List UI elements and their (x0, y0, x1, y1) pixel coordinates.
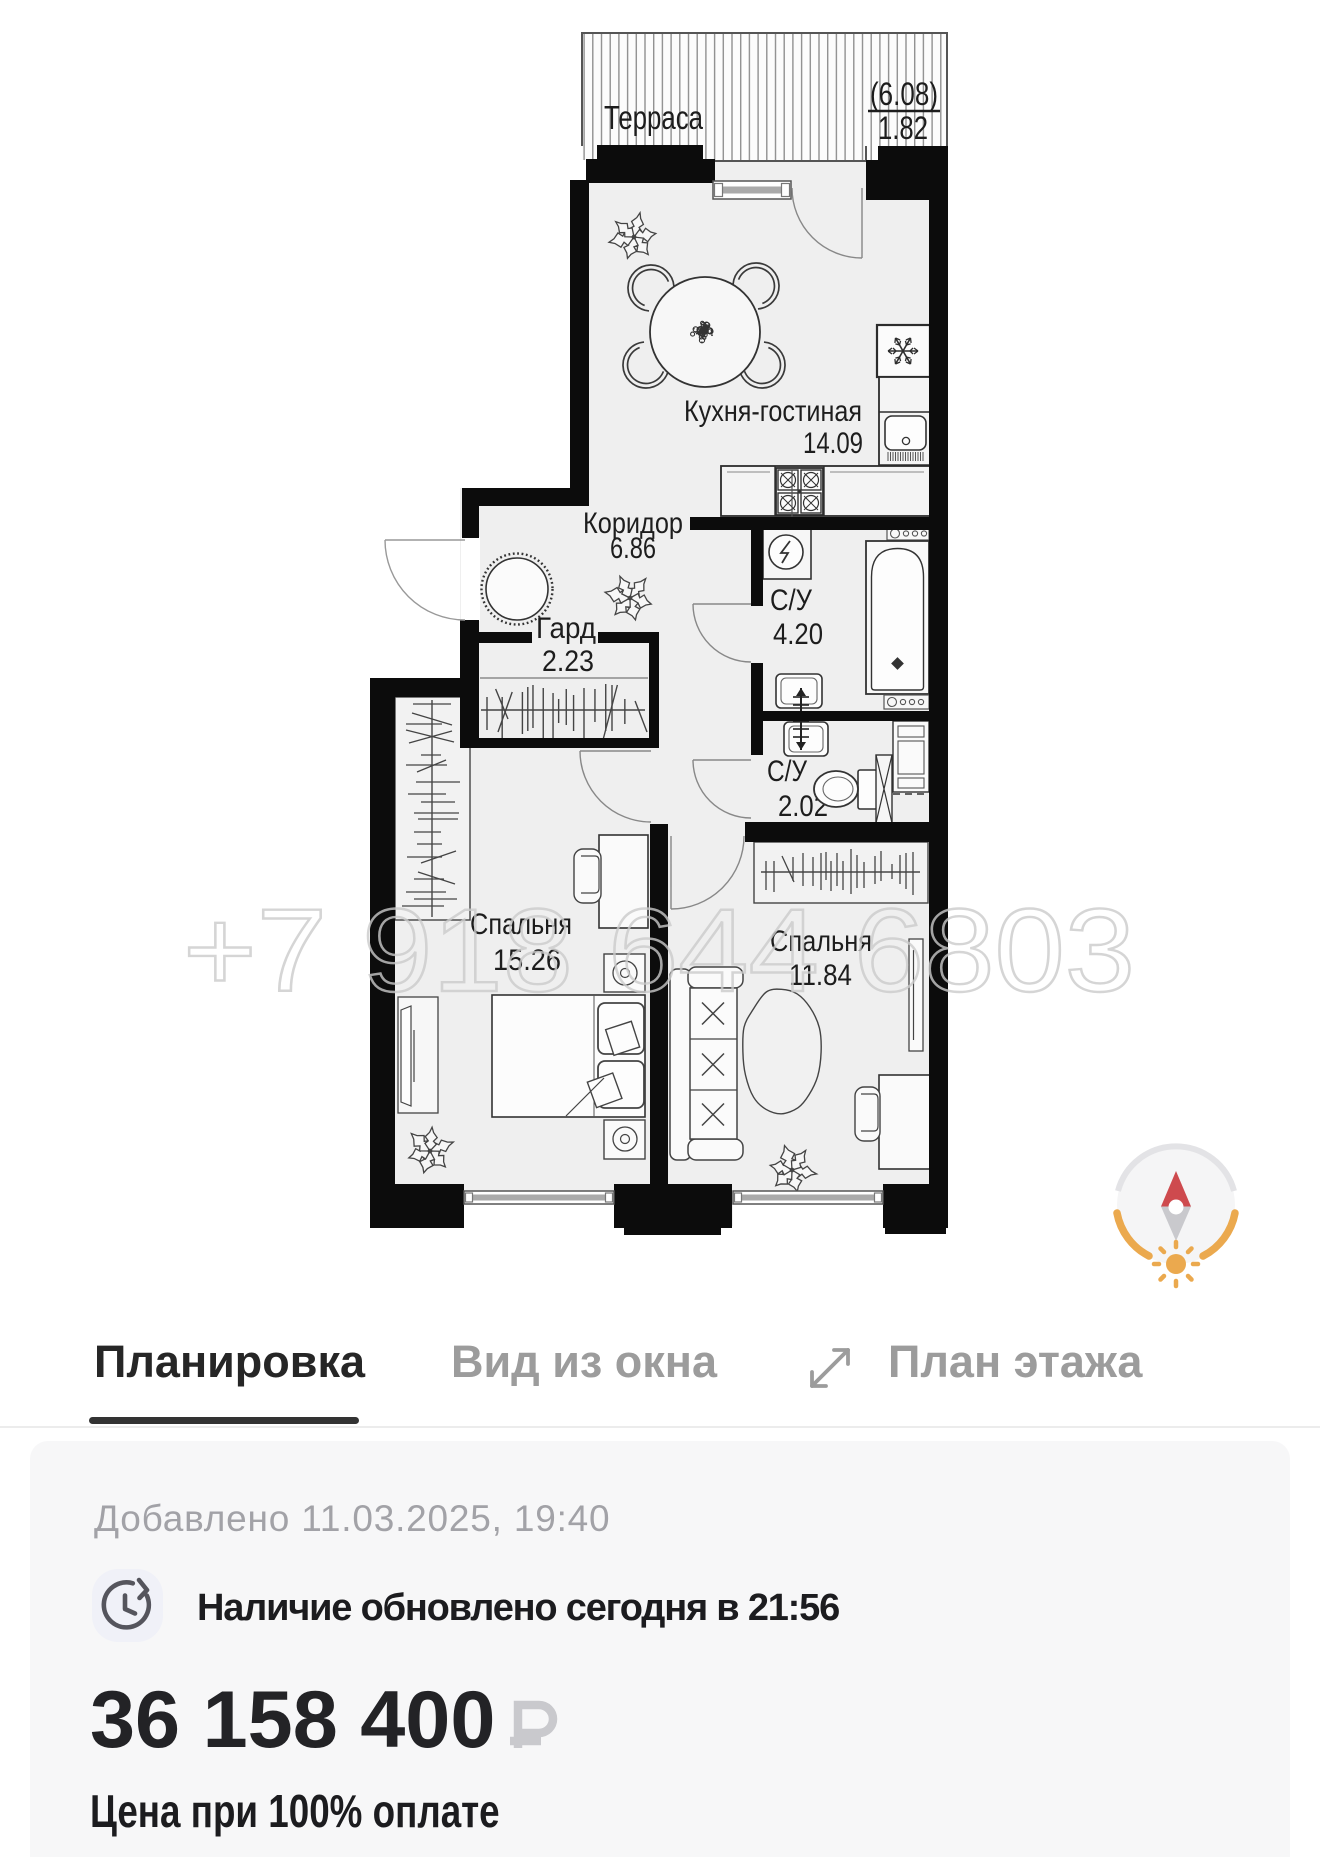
svg-text:Кухня-гостиная: Кухня-гостиная (684, 395, 862, 428)
svg-text:6.86: 6.86 (610, 532, 656, 565)
svg-text:С/У: С/У (767, 755, 808, 788)
svg-text:(6.08): (6.08) (870, 76, 938, 112)
svg-text:Терраса: Терраса (604, 99, 703, 136)
svg-text:Гард: Гард (536, 612, 596, 645)
svg-text:14.09: 14.09 (803, 427, 863, 460)
svg-text:1.82: 1.82 (878, 110, 928, 146)
svg-text:+7 918 644 6803: +7 918 644 6803 (183, 885, 1135, 1017)
svg-text:4.20: 4.20 (773, 618, 823, 651)
svg-text:С/У: С/У (770, 584, 813, 617)
svg-text:2.23: 2.23 (542, 645, 594, 678)
